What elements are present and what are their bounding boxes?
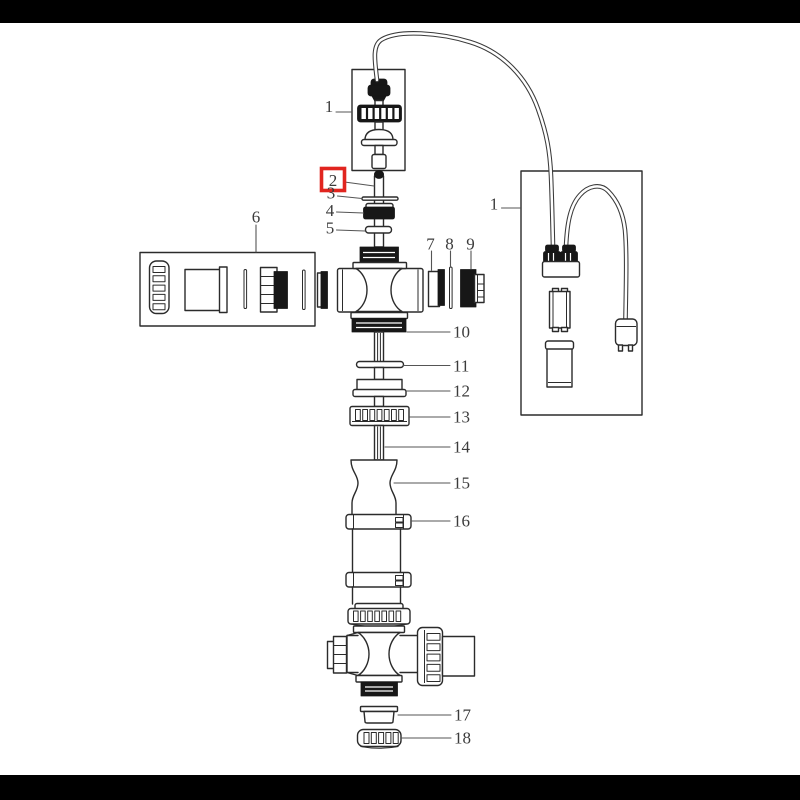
part-label-12: 12 bbox=[453, 382, 470, 401]
part-label-11: 11 bbox=[453, 357, 469, 376]
letterbox-top bbox=[0, 0, 800, 23]
part-label-18: 18 bbox=[454, 729, 471, 748]
part-label-1-right: 1 bbox=[490, 195, 499, 214]
part-label-8: 8 bbox=[445, 235, 454, 254]
part-label-14: 14 bbox=[453, 438, 471, 457]
part-label-17: 17 bbox=[454, 706, 472, 725]
part-label-7: 7 bbox=[426, 235, 435, 254]
diagram-canvas: 1 2 3 4 5 6 7 8 9 10 11 12 13 14 15 16 1… bbox=[0, 0, 800, 800]
part-label-3: 3 bbox=[327, 184, 336, 203]
part-label-4: 4 bbox=[326, 201, 335, 220]
seal-parts-7-8-9 bbox=[429, 267, 485, 309]
exploded-diagram-svg: 1 2 3 4 5 6 7 8 9 10 11 12 13 14 15 16 1… bbox=[0, 0, 800, 800]
top-lamp-cap-assembly bbox=[352, 70, 405, 171]
part-label-16: 16 bbox=[453, 512, 470, 531]
lamp-sleeve-box bbox=[140, 253, 315, 327]
upper-tee-body bbox=[338, 263, 424, 333]
part-label-15: 15 bbox=[453, 474, 470, 493]
part-label-6: 6 bbox=[252, 208, 261, 227]
part-label-5: 5 bbox=[326, 219, 335, 238]
part-label-13: 13 bbox=[453, 408, 470, 427]
letterbox-bottom bbox=[0, 775, 800, 800]
left-port-adapter bbox=[318, 272, 328, 309]
part-label-9: 9 bbox=[466, 235, 475, 254]
part-label-10: 10 bbox=[453, 323, 470, 342]
lower-tee-body bbox=[328, 604, 475, 697]
part-label-1-top: 1 bbox=[325, 97, 334, 116]
bottom-parts-17-18 bbox=[358, 707, 402, 749]
center-column-lower bbox=[346, 332, 411, 604]
